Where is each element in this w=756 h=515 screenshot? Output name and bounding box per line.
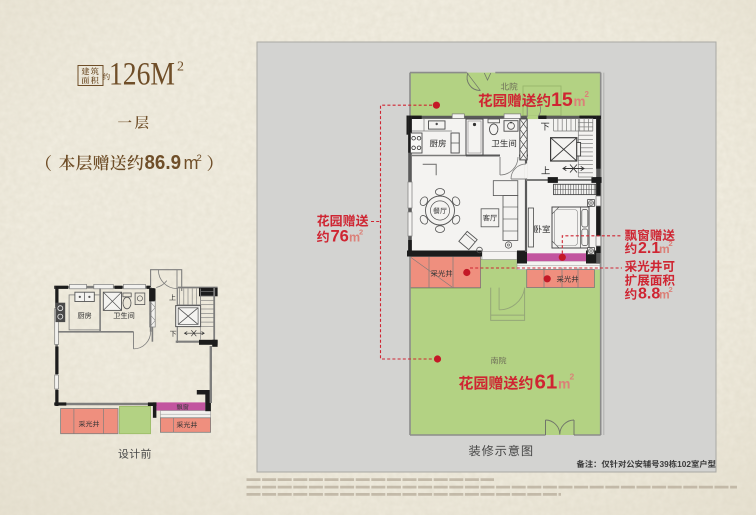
svg-text:61: 61	[535, 371, 558, 394]
svg-text:2: 2	[669, 285, 673, 294]
svg-text:2: 2	[570, 372, 575, 382]
svg-text:102: 102	[677, 459, 691, 469]
svg-text:2: 2	[177, 60, 184, 75]
svg-text:76: 76	[331, 228, 349, 246]
svg-text:2: 2	[669, 239, 673, 248]
svg-text:2: 2	[197, 153, 202, 164]
svg-text:126M: 126M	[109, 57, 175, 93]
svg-text:2: 2	[359, 228, 363, 237]
svg-text:2: 2	[585, 90, 590, 99]
svg-text:2.1: 2.1	[638, 240, 660, 257]
svg-text:39: 39	[660, 459, 670, 469]
svg-text:8.8: 8.8	[638, 286, 660, 303]
svg-text:15: 15	[551, 89, 573, 111]
svg-text:86.9: 86.9	[145, 151, 182, 174]
